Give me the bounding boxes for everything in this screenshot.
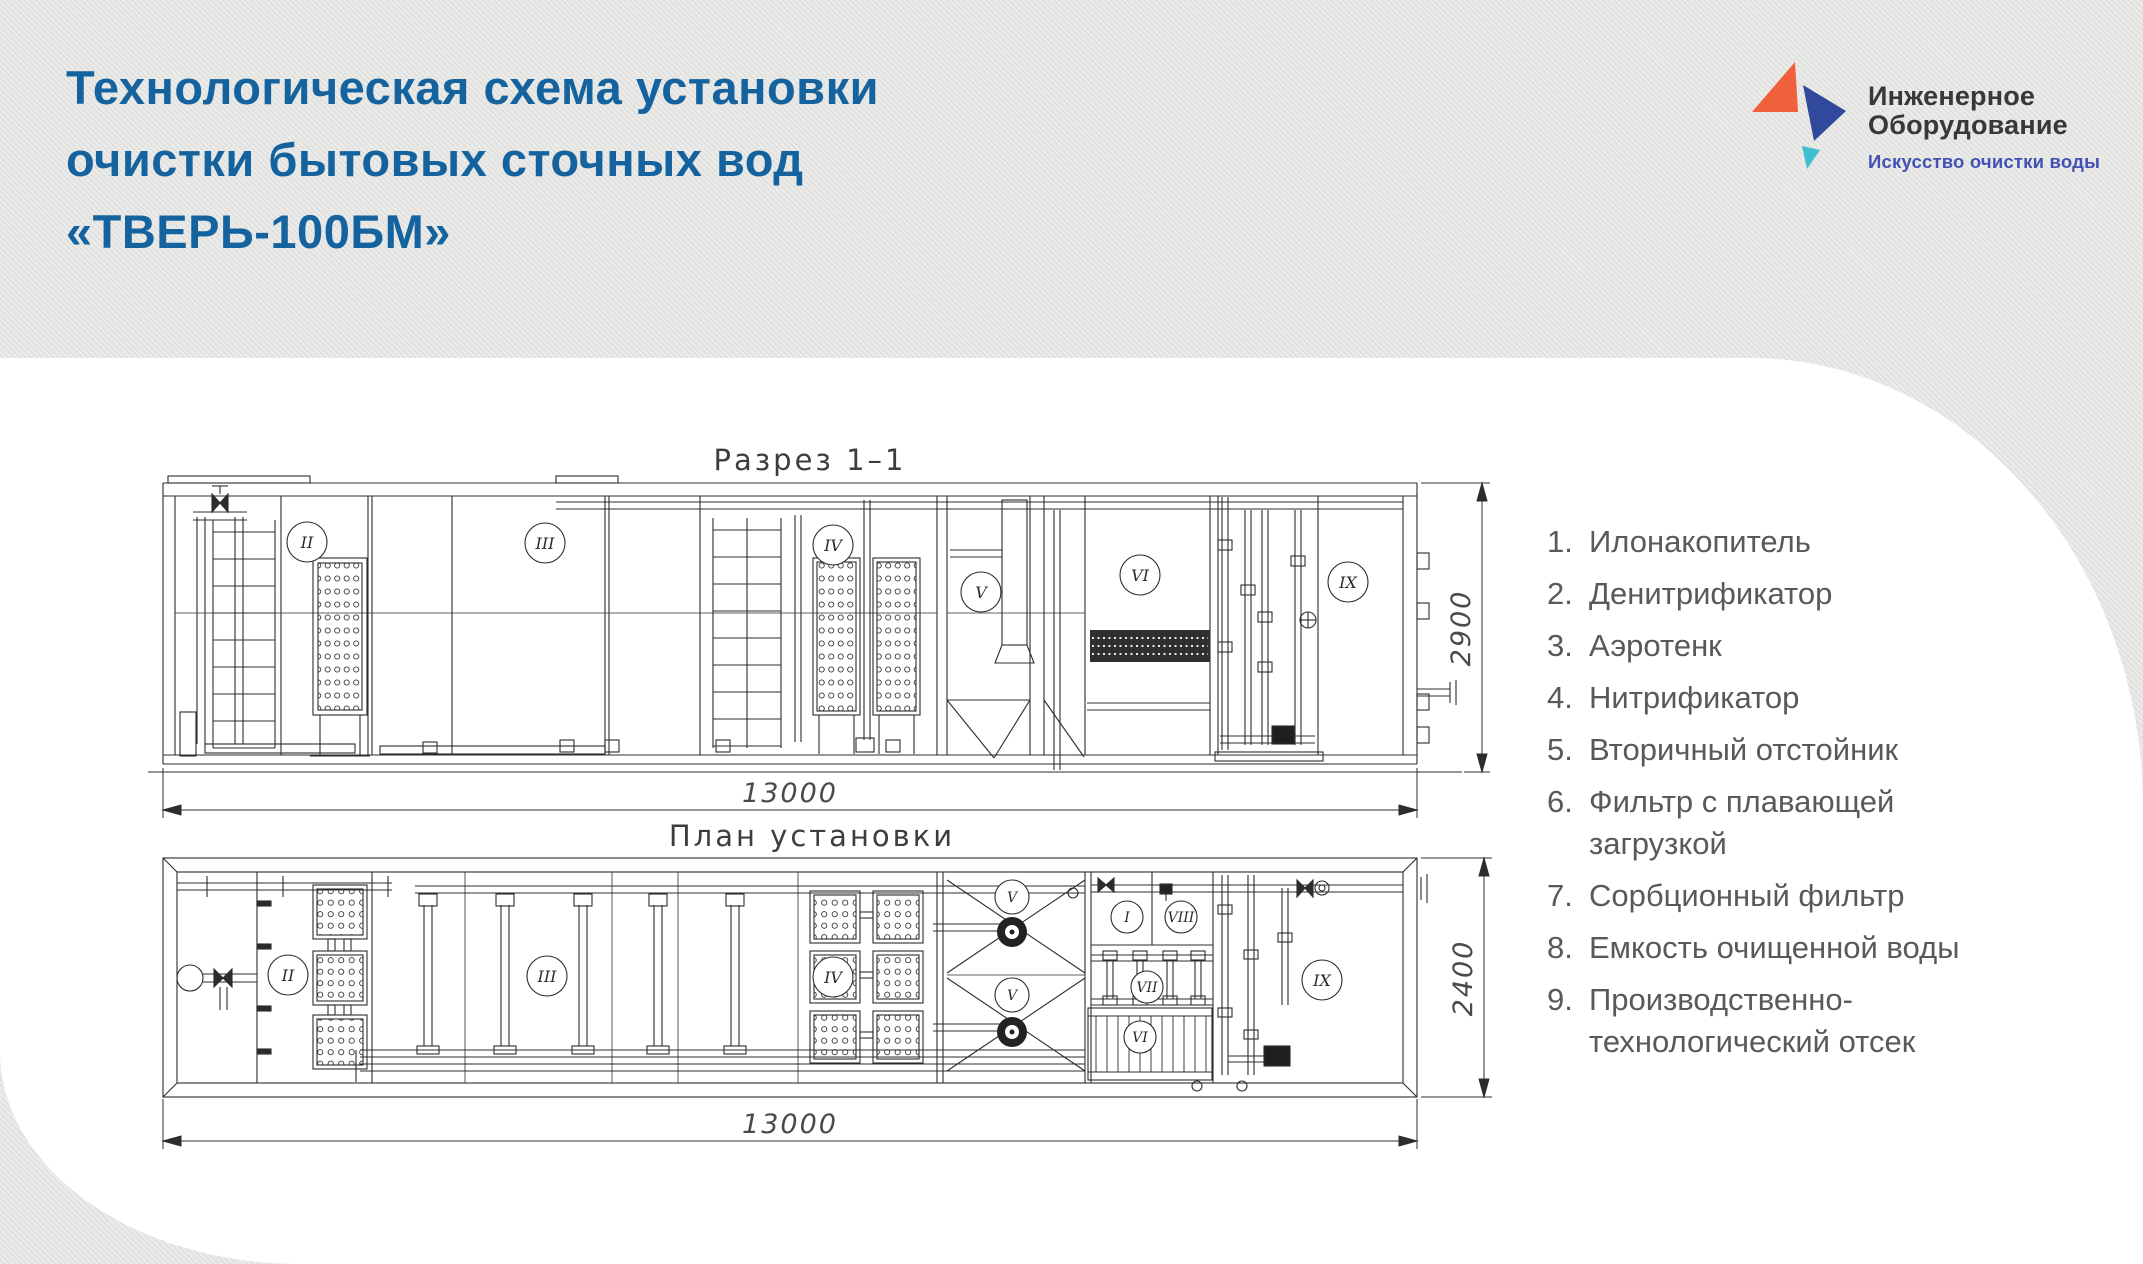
section-height-dim: 2900 [1446,590,1477,667]
label-VI: VI [1131,566,1150,585]
plan-label-VIII: VIII [1168,910,1195,926]
label-IX: IX [1338,573,1357,592]
section-title: Разрез 1–1 [714,443,907,477]
section-drawing [148,476,1490,818]
section-width-dim: 13000 [742,778,838,809]
plan-height-dim: 2400 [1448,940,1479,1017]
label-II: II [300,533,314,552]
plan-label-IX: IX [1312,971,1331,990]
plan-label-VII: VII [1136,980,1158,996]
label-III: III [535,534,556,553]
plan-label-II: II [281,966,295,985]
plan-label-IV: IV [823,968,843,987]
plan-title: План установки [669,819,955,853]
technical-drawing: Разрез 1–1 13000 2900 II III IV V VI IX [0,0,2143,1264]
label-IV: IV [823,536,843,555]
plan-label-I: I [1123,910,1130,926]
plan-drawing [163,858,1492,1149]
label-V: V [975,583,988,602]
plan-width-dim: 13000 [742,1109,838,1140]
plan-label-III: III [537,967,558,986]
plan-label-VI: VI [1132,1030,1148,1046]
